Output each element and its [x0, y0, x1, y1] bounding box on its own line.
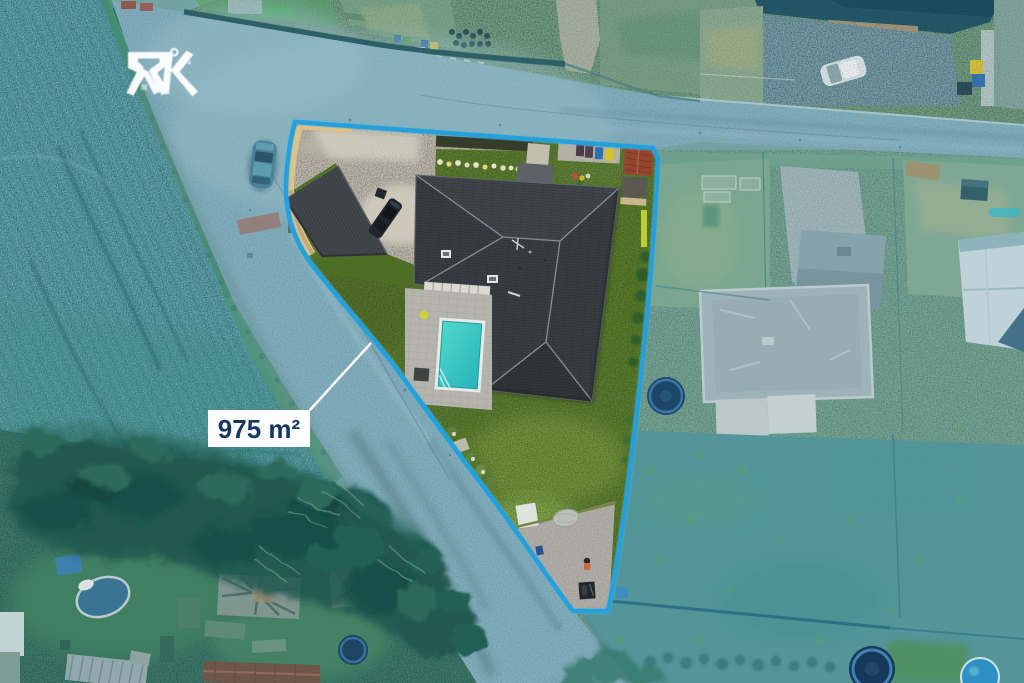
svg-text:975 m²: 975 m²	[218, 414, 301, 444]
